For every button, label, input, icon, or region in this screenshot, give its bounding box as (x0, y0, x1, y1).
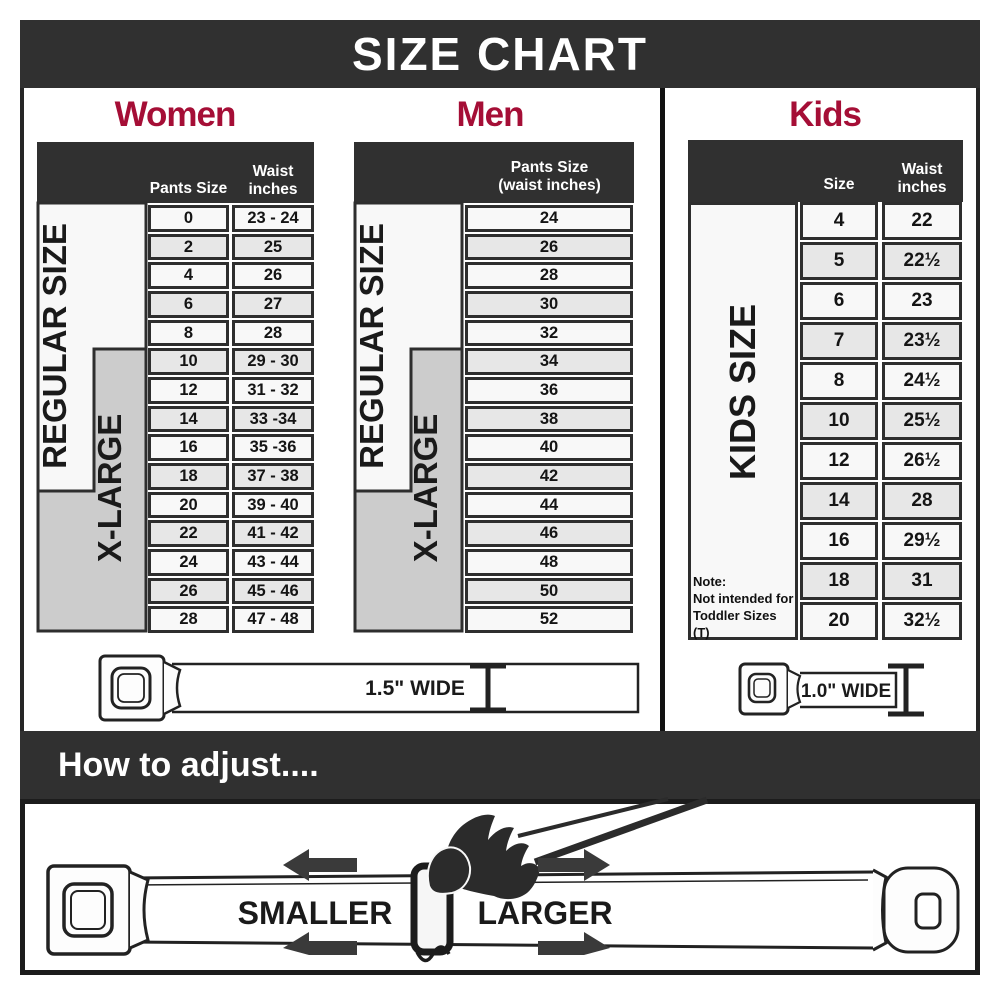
women-pants-size-cell: 2 (148, 234, 229, 261)
kids-waist-cell: 32½ (882, 602, 962, 640)
arrow-left-icon (283, 932, 357, 955)
kids-waist-cell: 31 (882, 562, 962, 600)
adult-belt-illustration: 1.5" WIDE (85, 648, 650, 728)
men-pants-size-cell: 36 (465, 377, 633, 404)
women-pants-size-cell: 28 (148, 606, 229, 633)
women-waist-cell: 35 -36 (232, 434, 314, 461)
women-waist-cell: 29 - 30 (232, 348, 314, 375)
frame-border-right (976, 88, 980, 731)
kids-size-cell: 5 (800, 242, 878, 280)
kids-waist-cell: 23½ (882, 322, 962, 360)
smaller-label: SMALLER (238, 895, 393, 931)
women-pants-size-cell: 8 (148, 320, 229, 347)
kids-size-cell: 4 (800, 202, 878, 240)
men-pants-size-cell: 28 (465, 262, 633, 289)
men-pants-size-cell: 50 (465, 578, 633, 605)
women-waist-column: 23 - 242526272829 - 3031 - 3233 -3435 -3… (232, 205, 314, 633)
men-pants-size-cell: 26 (465, 234, 633, 261)
larger-label: LARGER (477, 895, 612, 931)
kids-size-cell: 16 (800, 522, 878, 560)
women-pants-size-cell: 18 (148, 463, 229, 490)
women-waist-cell: 23 - 24 (232, 205, 314, 232)
kids-size-column: 45678101214161820 (800, 202, 878, 640)
men-pants-size-cell: 52 (465, 606, 633, 633)
women-waist-cell: 25 (232, 234, 314, 261)
kids-heading: Kids (700, 94, 950, 136)
kids-belt-illustration: 1.0" WIDE (730, 655, 940, 725)
kids-belt-width-label: 1.0" WIDE (801, 681, 891, 702)
women-pants-size-cell: 20 (148, 492, 229, 519)
arrow-right-icon (538, 932, 610, 955)
women-waist-cell: 26 (232, 262, 314, 289)
kids-note: Note: Not intended for Toddler Sizes (T) (693, 573, 795, 642)
women-pants-size-cell: 24 (148, 549, 229, 576)
kids-waist-cell: 29½ (882, 522, 962, 560)
hand-icon (428, 799, 707, 899)
kids-size-cell: 12 (800, 442, 878, 480)
kids-waist-cell: 22 (882, 202, 962, 240)
women-pants-size-cell: 10 (148, 348, 229, 375)
women-pants-size-cell: 12 (148, 377, 229, 404)
women-pants-size-cell: 6 (148, 291, 229, 318)
women-xlarge-label: X-LARGE (91, 414, 128, 563)
kids-size-cell: 8 (800, 362, 878, 400)
adjust-belt-buckle (48, 866, 148, 954)
women-waist-cell: 28 (232, 320, 314, 347)
adult-belt-width-label: 1.5" WIDE (365, 677, 465, 700)
kids-size-label: KIDS SIZE (722, 304, 764, 480)
adjust-belt-tip (873, 868, 958, 952)
men-xlarge-label: X-LARGE (407, 414, 444, 563)
women-heading: Women (40, 94, 310, 136)
men-regular-label: REGULAR SIZE (353, 223, 390, 469)
kids-size-cell: 10 (800, 402, 878, 440)
women-pants-size-column: 0246810121416182022242628 (148, 205, 229, 633)
women-pants-size-cell: 14 (148, 406, 229, 433)
kids-size-cell: 14 (800, 482, 878, 520)
women-waist-cell: 31 - 32 (232, 377, 314, 404)
kids-size-header: Size (800, 176, 878, 194)
men-pants-size-cell: 46 (465, 520, 633, 547)
women-waist-cell: 45 - 46 (232, 578, 314, 605)
how-to-adjust-band: How to adjust.... (20, 731, 980, 799)
men-size-range-labels: REGULAR SIZE X-LARGE (348, 196, 472, 640)
women-pants-size-cell: 16 (148, 434, 229, 461)
women-pants-size-cell: 0 (148, 205, 229, 232)
men-pants-size-cell: 32 (465, 320, 633, 347)
men-pants-size-column: 242628303234363840424446485052 (465, 205, 633, 633)
men-heading: Men (360, 94, 620, 136)
men-pants-size-cell: 48 (465, 549, 633, 576)
kids-size-label-wrap: KIDS SIZE (688, 202, 798, 582)
men-col-header: Pants Size (waist inches) (465, 159, 634, 195)
women-waist-cell: 47 - 48 (232, 606, 314, 633)
women-pants-size-cell: 26 (148, 578, 229, 605)
kids-waist-cell: 26½ (882, 442, 962, 480)
men-pants-size-cell: 38 (465, 406, 633, 433)
kids-table-header: Size Waist inches (688, 140, 963, 202)
kids-size-cell: 20 (800, 602, 878, 640)
women-pants-size-cell: 4 (148, 262, 229, 289)
women-waist-cell: 27 (232, 291, 314, 318)
men-pants-size-cell: 40 (465, 434, 633, 461)
kids-size-cell: 7 (800, 322, 878, 360)
page-title: SIZE CHART (352, 27, 648, 81)
kids-buckle-notch (788, 670, 800, 708)
men-pants-size-cell: 24 (465, 205, 633, 232)
adult-belt-buckle (100, 656, 164, 720)
kids-waist-cell: 23 (882, 282, 962, 320)
women-size-range-labels: REGULAR SIZE X-LARGE (30, 196, 160, 640)
women-regular-label: REGULAR SIZE (36, 223, 73, 469)
title-bar: SIZE CHART (20, 20, 980, 88)
adjust-illustration: SMALLER LARGER (25, 804, 975, 970)
women-table-header: Pants Size Waist inches (37, 142, 314, 203)
kids-waist-column: 2222½2323½24½25½26½2829½3132½ (882, 202, 962, 640)
men-pants-size-cell: 44 (465, 492, 633, 519)
men-table-header: Pants Size (waist inches) (354, 142, 634, 203)
kids-waist-cell: 25½ (882, 402, 962, 440)
women-waist-cell: 43 - 44 (232, 549, 314, 576)
width-measure-icon (470, 666, 506, 710)
kids-waist-cell: 24½ (882, 362, 962, 400)
section-divider (660, 88, 665, 731)
frame-border-left (20, 88, 24, 731)
men-pants-size-cell: 30 (465, 291, 633, 318)
adult-buckle-notch (164, 662, 180, 714)
size-chart-infographic: SIZE CHART Women Men Kids Pants Size Wai… (0, 0, 1000, 1000)
women-waist-cell: 41 - 42 (232, 520, 314, 547)
how-to-adjust-heading: How to adjust.... (58, 746, 319, 785)
women-waist-cell: 37 - 38 (232, 463, 314, 490)
kids-size-cell: 18 (800, 562, 878, 600)
kids-belt-buckle (740, 664, 788, 714)
men-pants-size-cell: 34 (465, 348, 633, 375)
women-waist-cell: 33 -34 (232, 406, 314, 433)
women-col2-header: Waist inches (232, 163, 314, 199)
kids-size-cell: 6 (800, 282, 878, 320)
kids-waist-cell: 22½ (882, 242, 962, 280)
women-pants-size-cell: 22 (148, 520, 229, 547)
kids-waist-cell: 28 (882, 482, 962, 520)
women-col1-header: Pants Size (148, 180, 229, 198)
kids-waist-header: Waist inches (882, 161, 962, 197)
women-waist-cell: 39 - 40 (232, 492, 314, 519)
men-pants-size-cell: 42 (465, 463, 633, 490)
